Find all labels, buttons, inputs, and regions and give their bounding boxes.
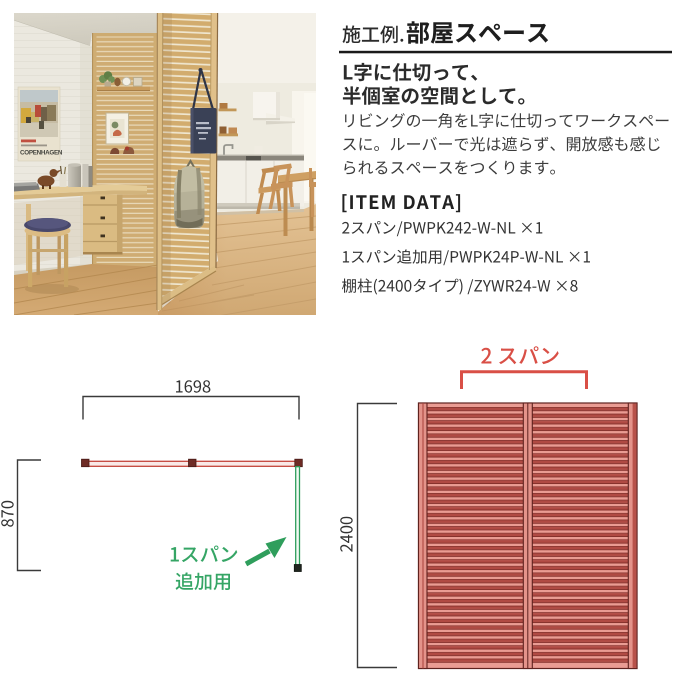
svg-text:COPENHAGEN: COPENHAGEN xyxy=(20,150,63,157)
